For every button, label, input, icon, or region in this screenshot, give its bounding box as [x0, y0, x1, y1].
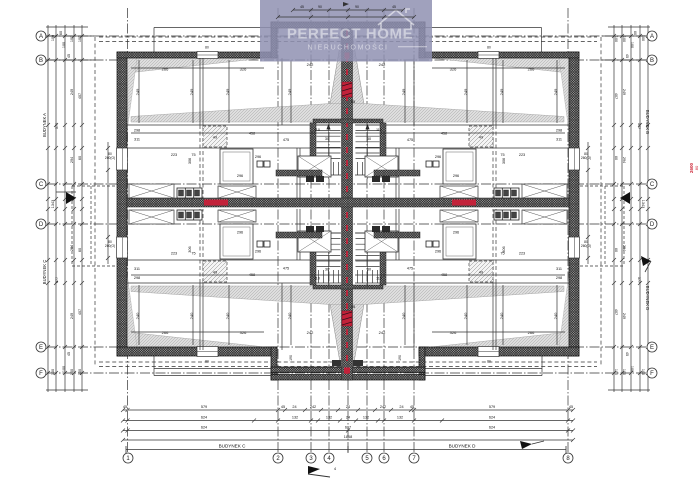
svg-text:60: 60 [614, 248, 618, 252]
svg-text:100: 100 [630, 366, 634, 372]
svg-text:266: 266 [528, 67, 535, 72]
svg-text:475: 475 [283, 138, 289, 142]
svg-text:24: 24 [399, 405, 403, 409]
svg-text:260(O): 260(O) [581, 156, 591, 160]
svg-text:100: 100 [70, 36, 74, 42]
svg-text:45: 45 [281, 405, 285, 409]
svg-text:407: 407 [614, 309, 618, 315]
svg-text:24: 24 [346, 405, 350, 409]
svg-text:242: 242 [310, 405, 316, 409]
svg-text:407: 407 [78, 309, 82, 315]
svg-text:110: 110 [314, 277, 320, 281]
svg-text:242: 242 [379, 330, 386, 335]
svg-text:60: 60 [78, 156, 82, 160]
svg-text:326: 326 [450, 67, 457, 72]
svg-text:298: 298 [556, 129, 562, 133]
svg-text:296: 296 [237, 231, 243, 235]
svg-text:100: 100 [630, 42, 634, 48]
svg-text:C: C [39, 182, 44, 188]
svg-text:80: 80 [487, 360, 491, 364]
svg-text:296: 296 [237, 174, 243, 178]
svg-text:75: 75 [191, 153, 195, 157]
svg-text:100: 100 [614, 36, 618, 42]
svg-text:266: 266 [528, 330, 535, 335]
svg-text:49: 49 [479, 270, 484, 275]
svg-text:45: 45 [625, 54, 629, 58]
svg-text:30: 30 [367, 268, 371, 272]
svg-text:30: 30 [325, 268, 329, 272]
svg-text:55: 55 [351, 304, 356, 309]
svg-text:260(O): 260(O) [581, 244, 591, 248]
svg-text:75: 75 [500, 153, 504, 157]
svg-text:100: 100 [641, 369, 645, 375]
svg-text:45: 45 [569, 405, 573, 409]
svg-text:F: F [39, 371, 43, 377]
svg-text:B: B [39, 58, 43, 64]
svg-text:458: 458 [249, 132, 255, 136]
svg-text:D: D [39, 222, 44, 228]
svg-text:80: 80 [487, 46, 491, 50]
svg-text:110: 110 [314, 128, 320, 132]
svg-text:311: 311 [134, 267, 140, 271]
svg-text:E: E [650, 345, 654, 351]
svg-text:326: 326 [450, 330, 457, 335]
svg-text:110: 110 [376, 128, 382, 132]
svg-text:132: 132 [326, 416, 332, 420]
svg-text:BUDYNEK D: BUDYNEK D [645, 286, 650, 310]
svg-text:C: C [650, 182, 655, 188]
svg-text:298: 298 [134, 276, 140, 280]
svg-text:1343: 1343 [51, 200, 55, 208]
svg-text:100: 100 [622, 36, 626, 42]
svg-text:90: 90 [318, 5, 322, 9]
svg-text:100: 100 [614, 369, 618, 375]
svg-text:30: 30 [325, 137, 329, 141]
svg-text:100: 100 [622, 369, 626, 375]
svg-text:24: 24 [292, 405, 296, 409]
svg-text:311: 311 [134, 138, 140, 142]
svg-text:242: 242 [380, 405, 386, 409]
svg-text:BUDYNEK A: BUDYNEK A [42, 113, 47, 137]
svg-text:311: 311 [556, 267, 562, 271]
svg-text:294: 294 [622, 157, 626, 163]
svg-text:242: 242 [307, 330, 314, 335]
svg-text:190: 190 [398, 355, 402, 361]
svg-text:80: 80 [205, 46, 209, 50]
svg-text:266: 266 [162, 67, 169, 72]
svg-text:306: 306 [188, 246, 192, 252]
svg-text:306: 306 [188, 158, 192, 164]
svg-text:190: 190 [289, 355, 293, 361]
svg-text:249: 249 [622, 89, 626, 95]
svg-text:60: 60 [633, 31, 637, 35]
svg-text:132: 132 [397, 416, 403, 420]
svg-text:326: 326 [240, 330, 247, 335]
svg-text:D: D [650, 222, 655, 228]
svg-text:242: 242 [307, 62, 314, 67]
svg-text:45: 45 [300, 5, 304, 9]
svg-text:624: 624 [489, 416, 495, 420]
svg-text:24: 24 [346, 416, 350, 420]
svg-text:624: 624 [201, 426, 207, 430]
svg-text:60: 60 [59, 31, 63, 35]
svg-text:242: 242 [379, 62, 386, 67]
svg-text:A: A [650, 34, 654, 40]
svg-text:100: 100 [62, 42, 66, 48]
svg-text:266: 266 [162, 330, 169, 335]
svg-text:90: 90 [355, 5, 359, 9]
svg-text:249: 249 [622, 313, 626, 319]
svg-text:223: 223 [519, 153, 525, 157]
svg-text:B: B [650, 58, 654, 64]
svg-text:579: 579 [489, 405, 495, 409]
svg-text:306: 306 [502, 158, 506, 164]
svg-text:298: 298 [556, 276, 562, 280]
svg-text:223: 223 [171, 252, 177, 256]
svg-text:223: 223 [519, 252, 525, 256]
svg-text:326: 326 [240, 67, 247, 72]
svg-text:294: 294 [70, 157, 74, 163]
svg-text:PERFECT HOME: PERFECT HOME [287, 26, 413, 43]
svg-text:260(O): 260(O) [105, 156, 115, 160]
svg-text:577: 577 [637, 123, 641, 129]
svg-text:624: 624 [489, 426, 495, 430]
svg-text:30: 30 [367, 137, 371, 141]
svg-text:60: 60 [78, 248, 82, 252]
svg-text:249: 249 [70, 89, 74, 95]
svg-text:A: A [39, 34, 43, 40]
svg-text:296: 296 [255, 250, 261, 254]
svg-text:BUDYNEK C: BUDYNEK C [42, 260, 47, 284]
svg-text:80: 80 [694, 165, 699, 170]
svg-text:577: 577 [637, 277, 641, 283]
svg-text:249: 249 [70, 313, 74, 319]
svg-text:475: 475 [407, 138, 413, 142]
svg-text:100: 100 [70, 369, 74, 375]
svg-text:49: 49 [479, 135, 484, 140]
svg-text:NIERUCHOMOŚCI: NIERUCHOMOŚCI [307, 43, 388, 52]
svg-text:223: 223 [171, 153, 177, 157]
svg-text:100: 100 [51, 369, 55, 375]
svg-text:45: 45 [67, 352, 71, 356]
svg-text:296: 296 [255, 155, 261, 159]
svg-text:BUDYNEK C: BUDYNEK C [219, 444, 246, 449]
svg-text:100: 100 [62, 366, 66, 372]
svg-text:100: 100 [78, 369, 82, 375]
svg-text:296: 296 [435, 250, 441, 254]
svg-text:1868: 1868 [344, 435, 352, 439]
svg-text:294: 294 [622, 245, 626, 251]
svg-text:298: 298 [134, 129, 140, 133]
svg-text:BUDYNEK D: BUDYNEK D [449, 444, 476, 449]
svg-text:296: 296 [453, 231, 459, 235]
svg-text:577: 577 [55, 123, 59, 129]
svg-text:475: 475 [283, 267, 289, 271]
svg-text:45: 45 [67, 54, 71, 58]
svg-text:296: 296 [435, 155, 441, 159]
svg-text:55: 55 [351, 99, 356, 104]
svg-text:296: 296 [453, 174, 459, 178]
svg-text:132: 132 [292, 416, 298, 420]
svg-text:458: 458 [441, 132, 447, 136]
svg-text:E: E [39, 345, 43, 351]
svg-text:F: F [650, 371, 654, 377]
svg-text:100: 100 [641, 35, 645, 41]
svg-text:579: 579 [201, 405, 207, 409]
svg-text:45: 45 [392, 5, 396, 9]
svg-text:1343: 1343 [641, 200, 645, 208]
svg-text:45: 45 [410, 405, 414, 409]
svg-text:100: 100 [51, 35, 55, 41]
svg-text:BUDYNEK B: BUDYNEK B [645, 110, 650, 134]
svg-text:75: 75 [191, 252, 195, 256]
svg-text:475: 475 [407, 267, 413, 271]
svg-text:80: 80 [205, 360, 209, 364]
svg-text:577: 577 [55, 277, 59, 283]
svg-text:45: 45 [123, 405, 127, 409]
svg-text:100: 100 [78, 36, 82, 42]
svg-text:306: 306 [502, 246, 506, 252]
svg-text:45: 45 [625, 352, 629, 356]
svg-text:49: 49 [213, 135, 218, 140]
svg-text:110: 110 [376, 277, 382, 281]
svg-text:49: 49 [213, 270, 218, 275]
svg-text:407: 407 [614, 93, 618, 99]
svg-text:311: 311 [556, 138, 562, 142]
svg-text:294: 294 [70, 245, 74, 251]
svg-text:132: 132 [363, 416, 369, 420]
svg-text:260(O): 260(O) [105, 244, 115, 248]
svg-text:407: 407 [78, 93, 82, 99]
svg-text:617: 617 [345, 426, 351, 430]
svg-text:624: 624 [201, 416, 207, 420]
svg-text:60: 60 [614, 156, 618, 160]
